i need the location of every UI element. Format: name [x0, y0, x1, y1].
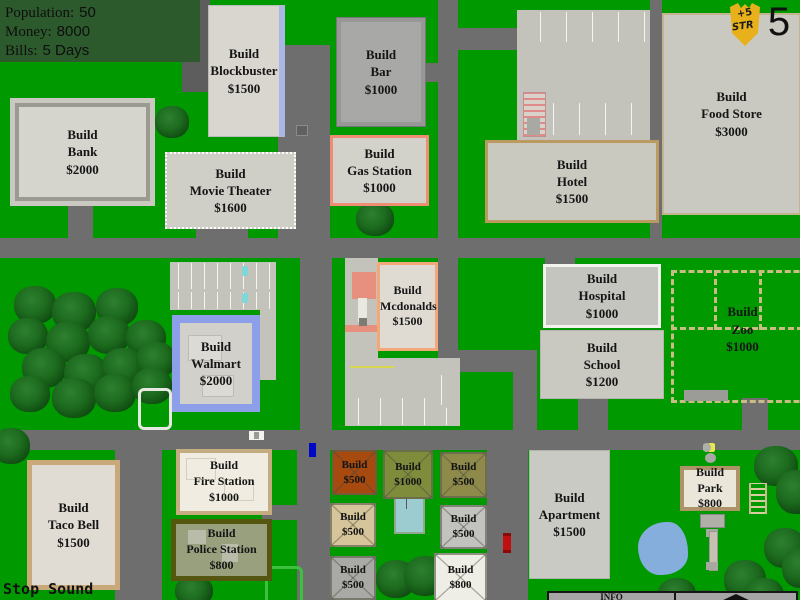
plot-build-lot-gray-left[interactable]: Build $500 [330, 556, 376, 600]
plot-label: Police Station [176, 542, 267, 558]
plot-build-lot-khaki[interactable]: Build $500 [440, 452, 487, 498]
plot-label: Build [32, 499, 115, 516]
plot-label: Build [176, 526, 267, 542]
plot-label: $1500 [488, 190, 656, 207]
drive-thru-stripe [345, 325, 377, 332]
plot-label: Fire Station [180, 474, 268, 490]
plot-label: School [541, 356, 663, 373]
plot-build-lot-olive[interactable]: Build $1000 [383, 450, 433, 499]
parking-lines [178, 292, 274, 309]
plot-label: Movie Theater [167, 182, 294, 199]
plot-build-police-station[interactable]: Build Police Station $800 [171, 519, 272, 581]
plot-label: Build [684, 465, 736, 481]
plot-build-zoo[interactable]: Build Zoo $1000 [700, 303, 785, 356]
plot-label: $1200 [541, 373, 663, 390]
plot-build-school[interactable]: Build School $1200 [540, 330, 664, 399]
car-icon [309, 443, 316, 457]
hud-panel: Population:50 Money:8000 Bills:5 Days [0, 0, 200, 62]
plot-build-bank-outer: Build Bank $2000 [10, 98, 155, 206]
plot-label: $3000 [664, 123, 799, 140]
plot-label: Build [19, 126, 146, 143]
tree-icon [10, 376, 50, 412]
plot-build-taco-bell[interactable]: Build Taco Bell $1500 [27, 460, 120, 590]
plot-label: $1000 [726, 338, 759, 356]
money-row: Money:8000 [5, 22, 200, 41]
plot-build-walmart[interactable]: Build Walmart $2000 [172, 315, 260, 412]
road-segment [458, 28, 518, 50]
cart-icon [242, 266, 248, 276]
car-icon [503, 533, 511, 553]
plot-build-bar[interactable]: Build Bar $1000 [337, 18, 425, 126]
road-segment [578, 397, 608, 432]
road-segment [115, 448, 162, 600]
plot-label: Build [340, 510, 366, 525]
road-segment [0, 430, 800, 450]
population-row: Population:50 [5, 3, 200, 22]
bench [700, 514, 725, 528]
tree-icon [0, 428, 30, 464]
plot-label: $500 [342, 578, 364, 593]
info-button[interactable]: INFO [549, 593, 676, 600]
plot-label: Taco Bell [32, 516, 115, 533]
plot-label: $1000 [394, 475, 422, 490]
plot-label: Build [541, 339, 663, 356]
money-value: 8000 [57, 23, 90, 40]
stone-icon [705, 453, 716, 463]
pond [638, 522, 688, 575]
plot-label: $800 [684, 496, 736, 512]
foundation-outline[interactable] [138, 388, 172, 430]
plot-label: $800 [450, 578, 472, 593]
plot-label: Build [341, 46, 421, 63]
road-segment [0, 238, 800, 258]
plot-label: Build [395, 460, 421, 475]
bills-row: Bills:5 Days [5, 41, 200, 60]
plot-label: Mcdonalds [380, 299, 435, 315]
plot-label: Build [664, 88, 799, 105]
plot-label: Bar [341, 63, 421, 80]
plot-label: Build [340, 563, 366, 578]
tree-icon [776, 470, 800, 514]
pool-ladder-icon [406, 499, 407, 509]
plot-label: $2000 [19, 161, 146, 178]
plot-label: Build [451, 512, 477, 527]
road-segment [513, 350, 537, 432]
tree-icon [155, 106, 189, 138]
expand-panel-button[interactable] [676, 593, 796, 600]
plot-label: $1500 [32, 534, 115, 551]
plot-build-lot-white[interactable]: Build $800 [434, 553, 487, 600]
plot-label: $500 [453, 475, 475, 490]
truck-cab [254, 432, 259, 439]
plot-build-movie-theater[interactable]: Build Movie Theater $1600 [165, 152, 296, 229]
money-label: Money: [5, 24, 52, 40]
plot-label: Hospital [546, 287, 658, 304]
plot-label: Park [684, 481, 736, 497]
strength-badge: +5 STR [727, 2, 763, 48]
pool [394, 497, 425, 534]
road-segment [68, 206, 93, 240]
plot-label: $500 [453, 527, 475, 542]
plot-label: $1000 [546, 305, 658, 322]
plot-build-gas-station[interactable]: Build Gas Station $1000 [330, 135, 429, 206]
plot-label: Apartment [530, 506, 609, 523]
plot-label: Bank [19, 143, 146, 160]
plot-label: $500 [344, 473, 366, 488]
zoo-pad [684, 390, 728, 401]
bills-value: 5 Days [43, 42, 90, 59]
plot-label: $1000 [333, 179, 426, 196]
seesaw-end [706, 562, 718, 570]
road-marker [296, 125, 308, 136]
plot-label: Build [180, 338, 252, 355]
population-value: 50 [79, 4, 96, 21]
plot-build-hotel[interactable]: Build Hotel $1500 [485, 140, 659, 223]
road-segment [487, 448, 528, 600]
plot-build-park[interactable]: Build Park $800 [680, 466, 740, 511]
plot-label: $800 [176, 558, 267, 574]
plot-label: Build [167, 165, 294, 182]
parking-lines [540, 12, 648, 42]
plot-label: $1000 [341, 81, 421, 98]
plot-label: Build [380, 283, 435, 299]
walmart-parking-strip [260, 310, 276, 380]
plot-build-apartment[interactable]: Build Apartment $1500 [529, 450, 610, 579]
tree-icon [52, 378, 96, 418]
day-counter: 5 [760, 0, 798, 48]
plot-label: Build [546, 270, 658, 287]
plot-label: Food Store [664, 105, 799, 122]
plot-label: Blockbuster [209, 62, 279, 79]
road-segment [300, 256, 332, 432]
drive-thru-marker [352, 272, 376, 299]
plot-label: Build [333, 145, 426, 162]
plot-build-blockbuster[interactable]: Build Blockbuster $1500 [208, 5, 285, 137]
plot-build-lot-tan[interactable]: Build $500 [330, 503, 376, 547]
tree-icon [94, 374, 136, 412]
plot-label: $1600 [167, 199, 294, 216]
plot-label: $2000 [180, 372, 252, 389]
plot-label: Build [488, 156, 656, 173]
plot-build-bank[interactable]: Build Bank $2000 [15, 103, 150, 201]
road-segment [438, 0, 458, 240]
plot-build-fire-station[interactable]: Build Fire Station $1000 [176, 449, 272, 515]
plot-label: Build [180, 458, 268, 474]
flower-icon [703, 443, 715, 452]
city-map: Build Blockbuster $1500 Build Bar $1000 … [0, 0, 800, 600]
plot-label: Build [209, 45, 279, 62]
plot-label: $1500 [380, 314, 435, 330]
plot-label: Build [342, 458, 368, 473]
plot-build-mcdonalds[interactable]: Build Mcdonalds $1500 [377, 262, 438, 351]
road-segment [742, 398, 768, 432]
plot-label: Zoo [732, 321, 754, 339]
plot-label: $1000 [180, 490, 268, 506]
parking-yellow-line [350, 366, 394, 368]
plot-label: Build [530, 489, 609, 506]
parking-lines [178, 263, 274, 289]
plot-label: $1500 [209, 80, 279, 97]
plot-build-lot-red[interactable]: Build $500 [332, 450, 377, 495]
stop-sound-button[interactable]: Stop Sound [3, 580, 93, 598]
plot-label: Build [448, 563, 474, 578]
plot-label: Build [451, 460, 477, 475]
menu-board-base [359, 318, 367, 326]
population-label: Population: [5, 5, 74, 21]
playground-ladder-icon [749, 483, 767, 514]
plot-label: $500 [342, 525, 364, 540]
bills-label: Bills: [5, 43, 38, 59]
plot-label: $1500 [530, 523, 609, 540]
parking-line [441, 375, 442, 405]
cart-icon [242, 293, 248, 303]
info-bar: INFO [547, 591, 798, 600]
plot-label: Gas Station [333, 162, 426, 179]
plot-label: Walmart [180, 355, 252, 372]
plot-build-lot-gray-right[interactable]: Build $500 [440, 505, 487, 549]
plot-label: Hotel [488, 173, 656, 190]
construction-base [527, 118, 540, 135]
tree-icon [356, 202, 394, 236]
plot-label: Build [727, 303, 757, 321]
plot-build-hospital[interactable]: Build Hospital $1000 [543, 264, 661, 328]
arrow-up-icon [719, 594, 753, 600]
